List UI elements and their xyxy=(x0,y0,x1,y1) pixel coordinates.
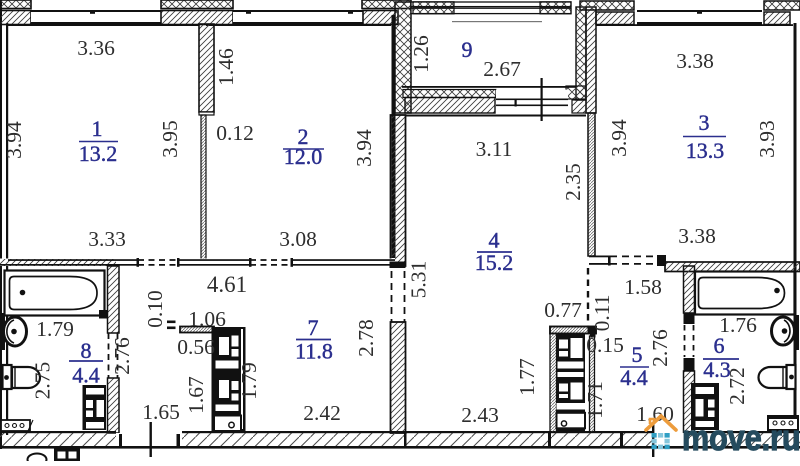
svg-text:move.ru: move.ru xyxy=(682,419,800,459)
svg-text:3.33: 3.33 xyxy=(88,227,126,251)
svg-text:3.11: 3.11 xyxy=(476,137,513,161)
svg-text:4.61: 4.61 xyxy=(207,272,247,297)
svg-text:1.58: 1.58 xyxy=(624,275,662,299)
svg-text:3.38: 3.38 xyxy=(676,49,714,73)
svg-text:2.75: 2.75 xyxy=(31,362,55,400)
svg-text:3.94: 3.94 xyxy=(607,119,631,157)
svg-text:4: 4 xyxy=(489,228,500,253)
svg-text:13.3: 13.3 xyxy=(686,138,725,163)
svg-text:2.72: 2.72 xyxy=(725,367,749,405)
svg-text:5: 5 xyxy=(632,342,643,367)
svg-text:2.43: 2.43 xyxy=(461,403,499,427)
svg-text:3.38: 3.38 xyxy=(678,224,716,248)
svg-text:2.42: 2.42 xyxy=(303,401,341,425)
svg-text:15.2: 15.2 xyxy=(475,250,514,275)
svg-text:2.67: 2.67 xyxy=(483,57,521,81)
svg-text:13.2: 13.2 xyxy=(79,141,118,166)
svg-text:1.71: 1.71 xyxy=(583,381,607,419)
svg-text:3.08: 3.08 xyxy=(279,227,317,251)
svg-text:0.10: 0.10 xyxy=(143,290,167,328)
svg-text:1.77: 1.77 xyxy=(515,358,539,396)
svg-text:0.11: 0.11 xyxy=(590,295,614,332)
svg-text:1.06: 1.06 xyxy=(188,307,226,331)
svg-text:3.93: 3.93 xyxy=(755,120,779,158)
svg-text:1.79: 1.79 xyxy=(237,362,261,400)
svg-text:11.8: 11.8 xyxy=(295,339,333,364)
svg-text:1.79: 1.79 xyxy=(36,317,74,341)
svg-text:5.31: 5.31 xyxy=(407,261,431,299)
svg-text:3.94: 3.94 xyxy=(2,121,26,159)
svg-text:1.76: 1.76 xyxy=(719,313,757,337)
svg-text:3: 3 xyxy=(699,110,710,135)
svg-text:1.46: 1.46 xyxy=(214,48,238,86)
svg-text:2.78: 2.78 xyxy=(354,319,378,357)
svg-text:4.4: 4.4 xyxy=(72,363,100,388)
svg-text:3.36: 3.36 xyxy=(77,36,115,60)
svg-text:1.26: 1.26 xyxy=(409,35,433,73)
svg-text:0.15: 0.15 xyxy=(586,333,624,357)
svg-text:2.76: 2.76 xyxy=(110,337,134,375)
svg-text:0.77: 0.77 xyxy=(544,298,582,322)
svg-text:3.94: 3.94 xyxy=(352,129,376,167)
svg-text:4.4: 4.4 xyxy=(620,365,648,390)
svg-text:7: 7 xyxy=(308,315,319,340)
svg-text:1.67: 1.67 xyxy=(184,376,208,414)
svg-text:0.12: 0.12 xyxy=(216,121,254,145)
svg-text:2.76: 2.76 xyxy=(648,329,672,367)
svg-text:1: 1 xyxy=(92,116,103,141)
svg-text:8: 8 xyxy=(81,338,92,363)
svg-text:0.56: 0.56 xyxy=(177,335,215,359)
svg-text:12.0: 12.0 xyxy=(284,144,323,169)
svg-text:9: 9 xyxy=(462,37,473,62)
svg-text:2.35: 2.35 xyxy=(561,163,585,201)
svg-text:3.95: 3.95 xyxy=(158,120,182,158)
svg-text:1.65: 1.65 xyxy=(142,400,180,424)
svg-text:6: 6 xyxy=(714,333,725,358)
